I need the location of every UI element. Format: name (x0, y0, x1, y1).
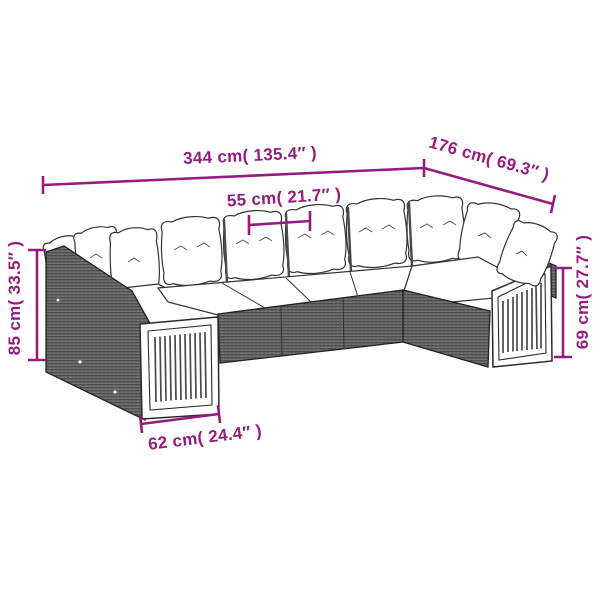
dim-back-height-line (28, 250, 46, 360)
dim-arm-height-label: 69 cm( 27.7″ ) (573, 235, 593, 349)
rivet-dot (78, 360, 81, 363)
back-cushion (344, 197, 409, 270)
dim-arm-height-line (554, 268, 572, 357)
wood-panel-left (140, 317, 219, 419)
rivet-dot (113, 390, 116, 393)
back-cushion (221, 209, 286, 282)
back-cushion (159, 215, 224, 288)
back-cushion (405, 195, 466, 264)
rivet-dot (57, 299, 60, 302)
wood-panel-left-frame (140, 317, 219, 419)
sofa-illustration (0, 0, 600, 600)
back-cushion (283, 203, 348, 276)
dimension-diagram: 344 cm( 135.4″ ) 176 cm( 69.3″ ) 55 cm( … (0, 0, 600, 600)
rattan-right-base (403, 290, 490, 367)
dim-back-height-label: 85 cm( 33.5″ ) (5, 241, 25, 355)
